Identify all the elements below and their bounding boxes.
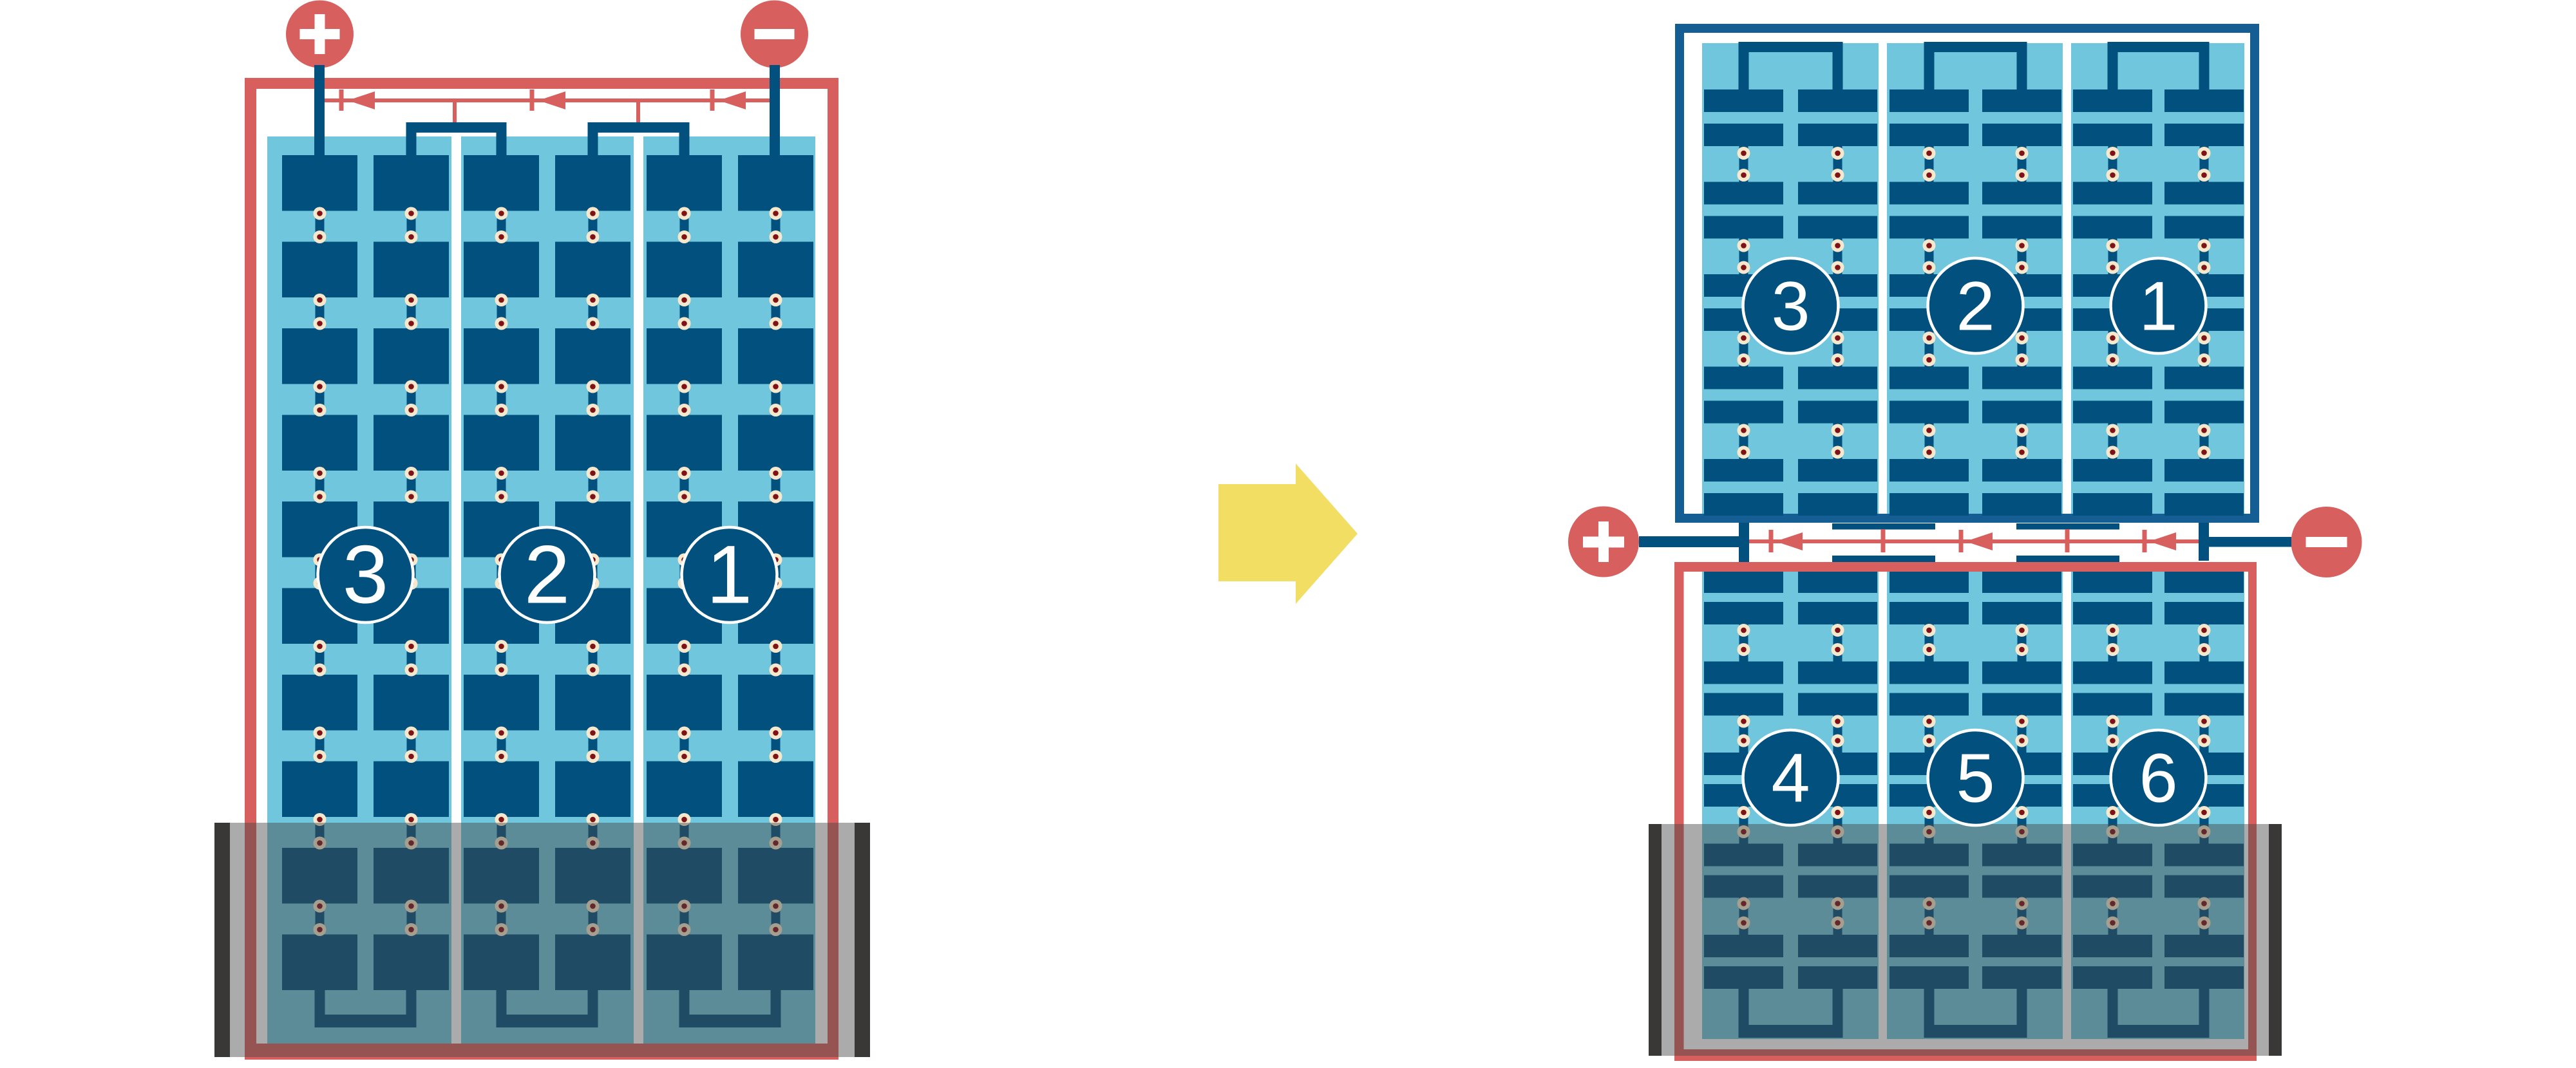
svg-text:4: 4 [1771, 739, 1810, 817]
svg-text:1: 1 [2139, 267, 2177, 345]
svg-text:3: 3 [343, 529, 388, 621]
svg-text:1: 1 [706, 529, 752, 621]
svg-text:2: 2 [1956, 267, 1994, 345]
svg-text:2: 2 [524, 529, 570, 621]
svg-text:3: 3 [1771, 267, 1810, 345]
svg-text:6: 6 [2139, 739, 2177, 817]
svg-text:5: 5 [1956, 739, 1994, 817]
